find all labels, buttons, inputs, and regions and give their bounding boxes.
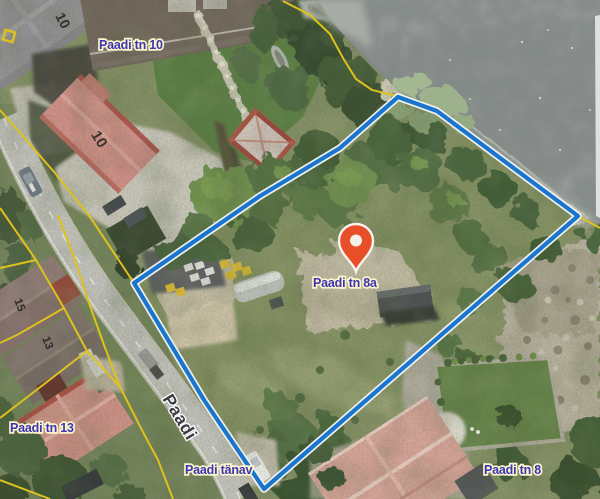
svg-text:Paadi tn 13: Paadi tn 13 xyxy=(10,421,74,435)
svg-text:Paadi tn 8a: Paadi tn 8a xyxy=(313,276,378,290)
svg-text:Paadi tänav: Paadi tänav xyxy=(185,463,253,477)
svg-text:Paadi tn 8: Paadi tn 8 xyxy=(484,463,541,477)
svg-text:Paadi tn 10: Paadi tn 10 xyxy=(99,38,163,52)
